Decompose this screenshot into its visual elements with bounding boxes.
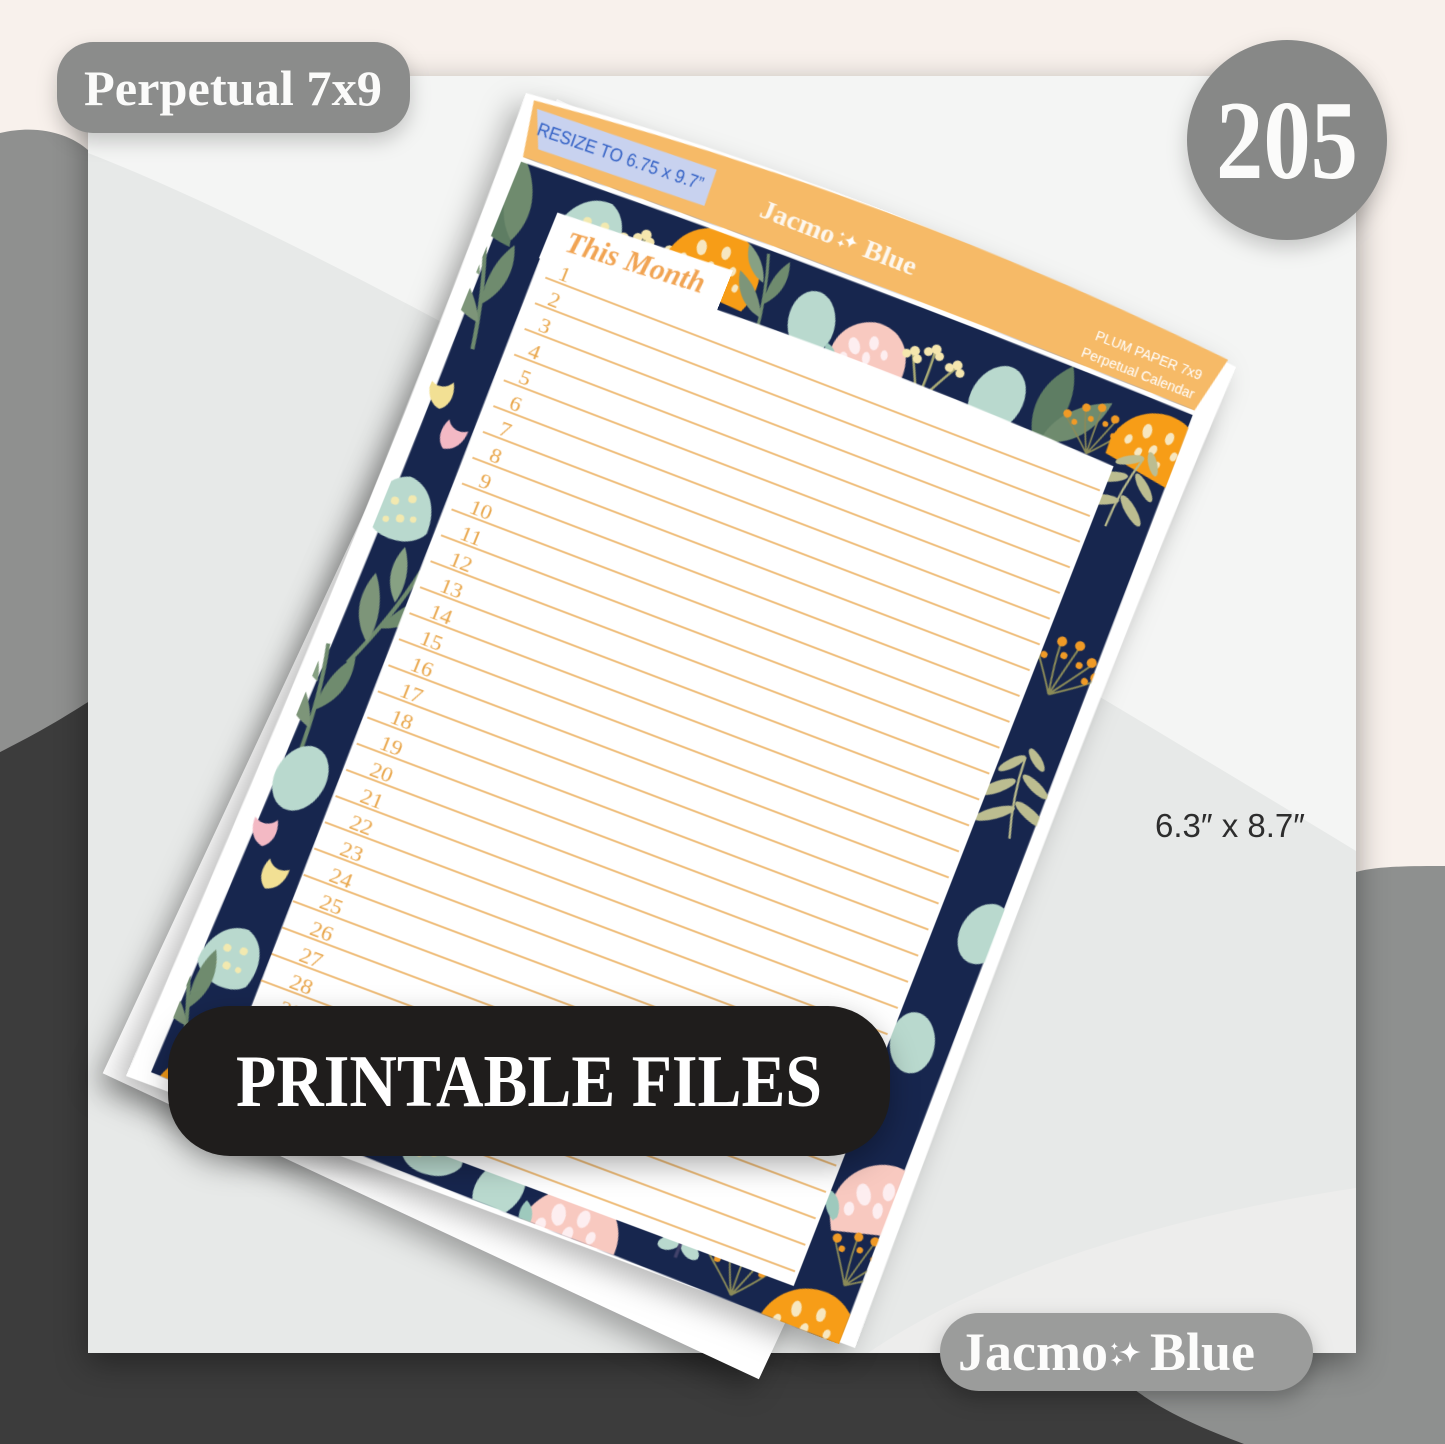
- svg-text:Perpetual 7x9: Perpetual 7x9: [84, 60, 382, 116]
- svg-text:6.3″ x 8.7″: 6.3″ x 8.7″: [1155, 807, 1305, 844]
- svg-text:PRINTABLE FILES: PRINTABLE FILES: [236, 1041, 822, 1123]
- svg-text:Blue: Blue: [1150, 1322, 1255, 1382]
- svg-text:Jacmo: Jacmo: [958, 1322, 1108, 1382]
- svg-text:205: 205: [1216, 79, 1358, 203]
